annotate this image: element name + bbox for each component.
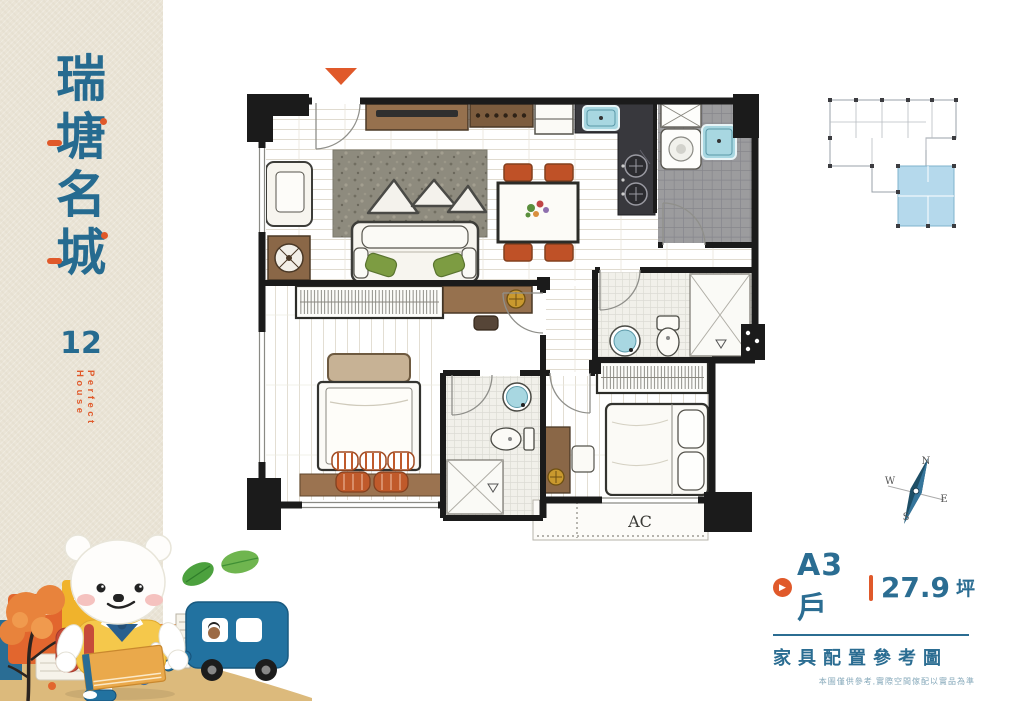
stool <box>572 446 594 472</box>
paw <box>56 652 76 672</box>
tall-cabinet <box>535 104 573 134</box>
shower1 <box>447 460 503 514</box>
compass-east: E <box>940 494 947 505</box>
headboard <box>328 354 410 382</box>
bus-window <box>236 618 262 642</box>
blush <box>145 594 163 606</box>
artwork-canvas: AC <box>0 0 1024 701</box>
ac-label: AC <box>627 512 652 531</box>
pillow <box>678 452 704 490</box>
mascot-scene <box>0 535 312 701</box>
key-plan <box>828 98 958 228</box>
sofa <box>352 222 478 282</box>
floor-plan: AC <box>247 68 765 540</box>
paw <box>168 650 188 670</box>
storage-box <box>661 104 701 127</box>
window-bench <box>300 474 443 496</box>
compass: N W E S <box>885 456 948 526</box>
ac-balcony: AC <box>533 500 708 540</box>
washing-machine <box>661 129 701 169</box>
compass-south: S <box>903 512 910 523</box>
compass-north: N <box>922 456 931 467</box>
washbasin2 <box>610 326 640 356</box>
shoe-cabinet <box>470 104 533 127</box>
bus-passenger <box>208 627 220 639</box>
corridor-floor <box>546 286 592 372</box>
toilet2 <box>657 316 679 356</box>
wardrobe-master <box>296 286 443 318</box>
bed2 <box>606 404 708 495</box>
pillow <box>678 410 704 448</box>
compass-west: W <box>885 476 896 487</box>
armchair <box>266 162 312 226</box>
washbasin1 <box>503 383 531 411</box>
blush <box>77 594 95 606</box>
poster-page: AC <box>0 0 1024 701</box>
leaves <box>178 547 261 591</box>
kitchen-sink <box>583 106 619 130</box>
wardrobe2 <box>597 362 708 393</box>
laundry-sink <box>702 125 736 159</box>
desk-stool <box>474 316 498 330</box>
bear-head <box>71 540 165 624</box>
toilet1 <box>491 428 534 450</box>
tv-console <box>366 104 468 130</box>
side-table-lamp <box>268 236 310 280</box>
entry-marker-triangle <box>325 68 357 85</box>
